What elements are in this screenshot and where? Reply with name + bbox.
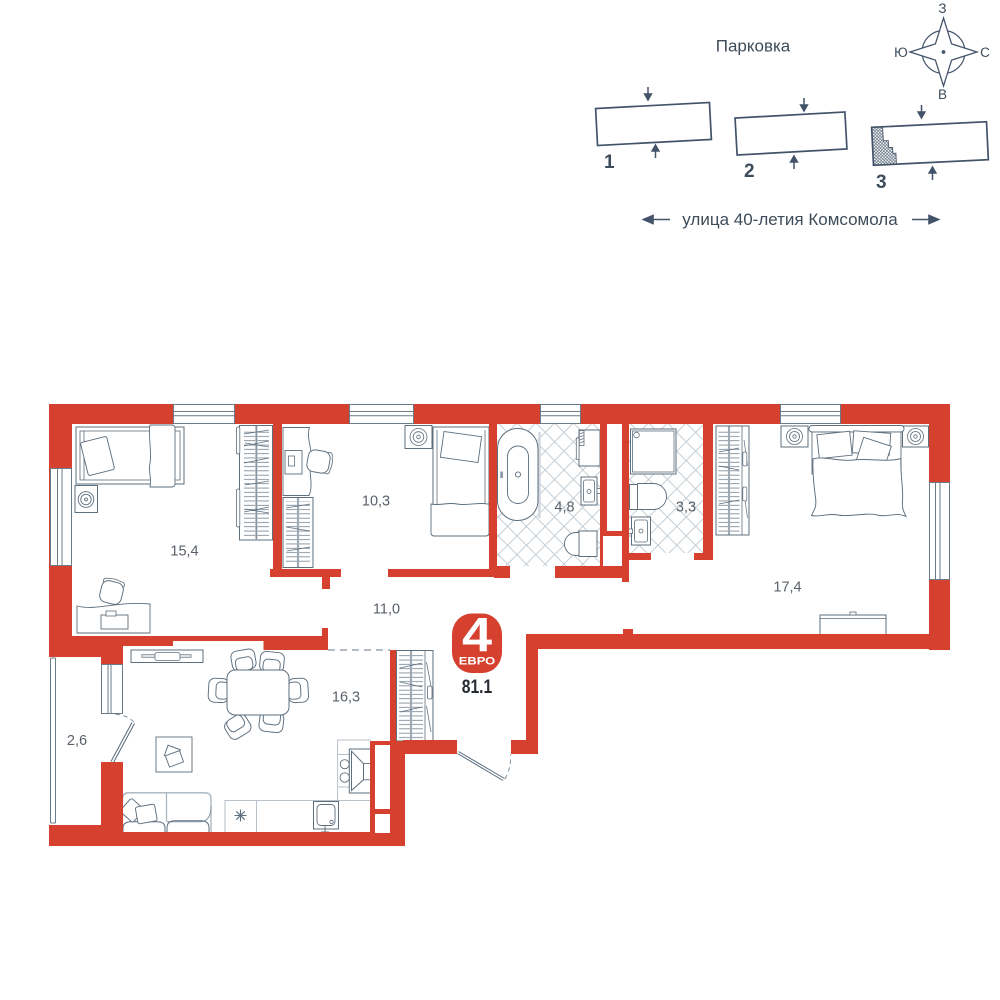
svg-text:В: В: [938, 87, 947, 102]
svg-text:3: 3: [876, 172, 887, 193]
svg-text:10,3: 10,3: [362, 494, 390, 510]
svg-text:1: 1: [604, 152, 615, 173]
svg-text:17,4: 17,4: [773, 580, 801, 596]
svg-text:ЕВРО: ЕВРО: [459, 656, 496, 668]
svg-text:16,3: 16,3: [332, 690, 360, 706]
svg-text:Ю: Ю: [894, 45, 908, 60]
svg-text:15,4: 15,4: [170, 544, 198, 560]
svg-text:3,3: 3,3: [676, 500, 696, 516]
svg-text:11,0: 11,0: [373, 602, 400, 618]
svg-text:4,8: 4,8: [554, 500, 574, 516]
svg-text:Парковка: Парковка: [716, 37, 791, 56]
svg-text:81.1: 81.1: [462, 677, 493, 698]
svg-text:З: З: [938, 1, 946, 16]
svg-text:С: С: [980, 45, 990, 60]
svg-text:2: 2: [744, 161, 755, 182]
svg-text:2,6: 2,6: [67, 733, 87, 749]
svg-text:улица 40-летия Комсомола: улица 40-летия Комсомола: [682, 210, 898, 229]
